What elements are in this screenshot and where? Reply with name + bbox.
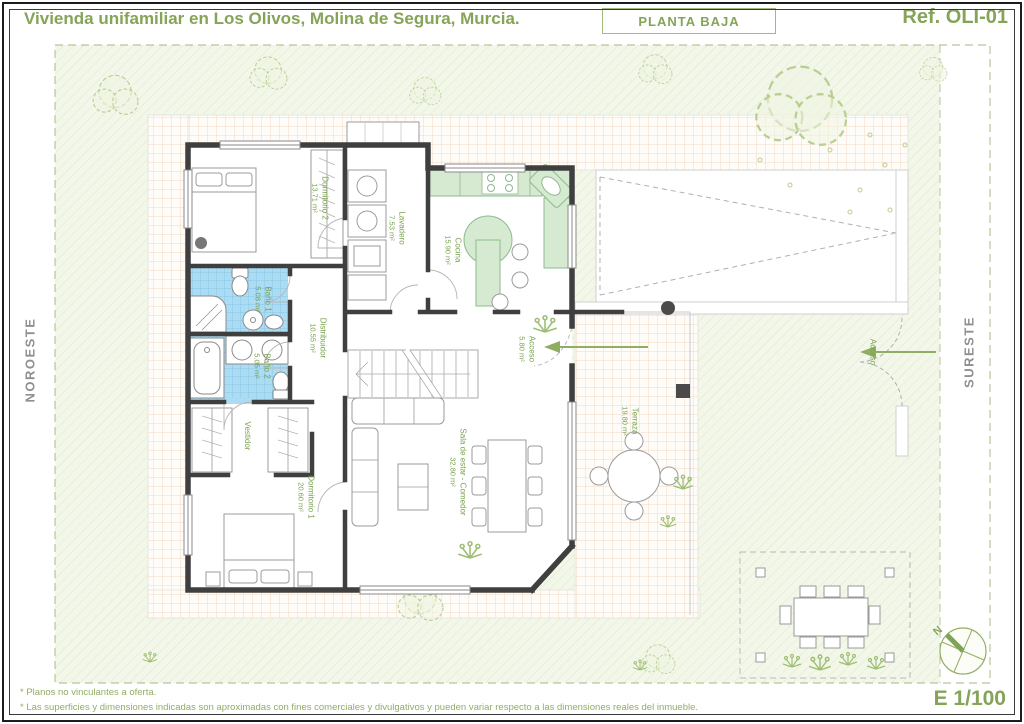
room-label-terraza: Terraza 19.80 m² [620, 406, 639, 436]
plan-level-badge: PLANTA BAJA [602, 8, 776, 34]
footnote-2: * Las superficies y dimensiones indicada… [20, 702, 698, 713]
room-label-bano-1: Baño 1 5.08 m² [253, 286, 272, 311]
page-title: Vivienda unifamiliar en Los Olivos, Moli… [24, 9, 520, 29]
room-label-bano-2: Baño 2 5.05 m² [252, 353, 271, 378]
site-entrance-label: Acceso [869, 339, 878, 365]
room-label-distribuidor: Distribuidor 10.55 m² [308, 318, 327, 358]
floor-plan-sheet: Vivienda unifamiliar en Los Olivos, Moli… [0, 0, 1024, 724]
room-label-lavadero: Lavadero 7.53 m² [387, 211, 406, 244]
orientation-label-sureste: SURESTE [962, 316, 977, 388]
text-overlay: Vivienda unifamiliar en Los Olivos, Moli… [0, 0, 1024, 724]
room-label-vestidor: Vestidor [242, 422, 252, 451]
orientation-label-noroeste: NOROESTE [23, 318, 38, 403]
scale-label: E 1/100 [934, 687, 1006, 711]
footnote-1: * Planos no vinculantes a oferta. [20, 687, 156, 698]
room-label-acceso: Acceso 5.80 m² [517, 336, 536, 362]
room-label-sala: Sala de estar - Comedor 32.80 m² [448, 428, 467, 515]
room-label-dormitorio-2: Dormitorio 2 13.71 m² [310, 176, 329, 220]
reference-code: Ref. OLI-01 [902, 6, 1008, 29]
compass-north-label: N [931, 624, 945, 638]
room-label-cocina: Cocina 15.90 m² [443, 235, 462, 265]
room-label-dormitorio-1: Dormitorio 1 20.60 m² [296, 475, 315, 519]
